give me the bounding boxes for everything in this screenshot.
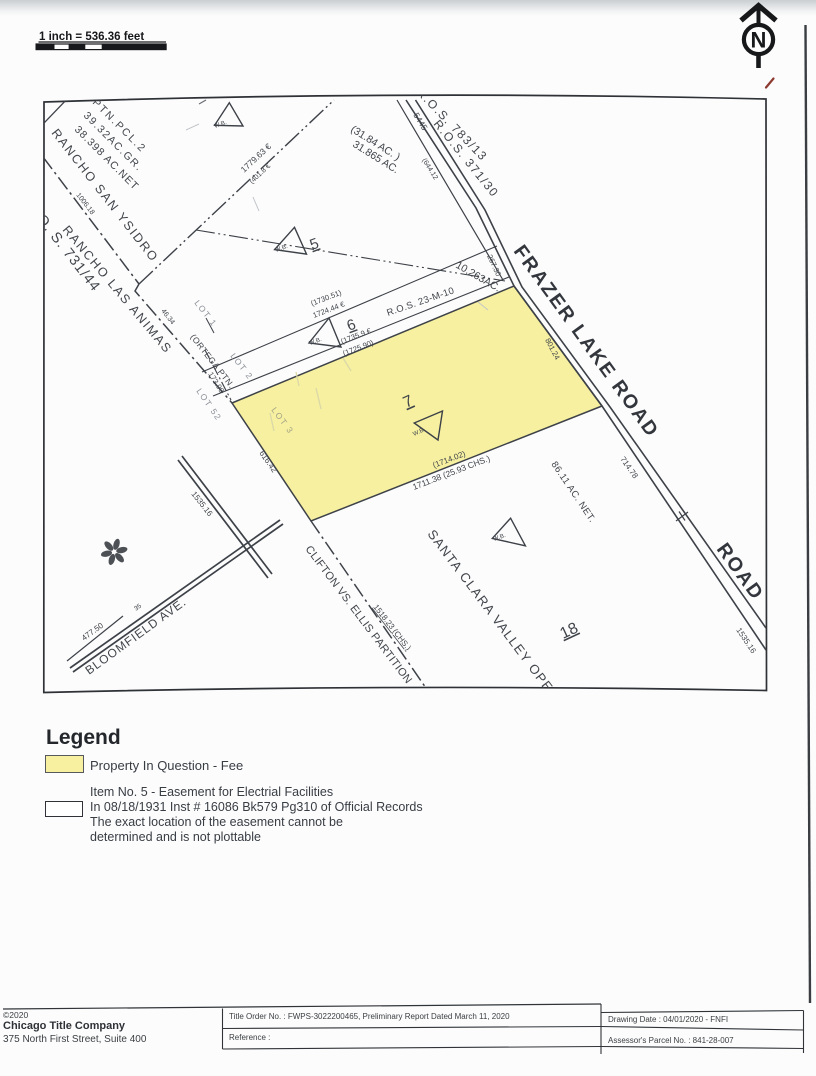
svg-text:N: N — [751, 28, 767, 53]
svg-text:5: 5 — [308, 235, 322, 254]
svg-text:18: 18 — [558, 620, 581, 643]
svg-text:W.B.: W.B. — [309, 337, 323, 347]
svg-text:LOT 1: LOT 1 — [192, 298, 219, 329]
svg-text:(644.12: (644.12 — [420, 157, 439, 181]
svg-text:CLIFTON VS. ELLIS PARTITION: CLIFTON VS. ELLIS PARTITION — [303, 544, 415, 687]
svg-text:6: 6 — [345, 316, 359, 335]
svg-text:W.B.: W.B. — [275, 244, 289, 254]
svg-text:1 inch = 536.36 feet: 1 inch = 536.36 feet — [39, 31, 144, 43]
svg-text:RANCHO LAS ANIMAS: RANCHO LAS ANIMAS — [60, 223, 175, 357]
svg-text:1006.18: 1006.18 — [74, 192, 95, 216]
svg-text:35: 35 — [133, 602, 143, 612]
svg-text:477.50: 477.50 — [80, 621, 106, 643]
svg-text:86.11 AC. NET.: 86.11 AC. NET. — [549, 460, 598, 525]
svg-text:ROAD: ROAD — [712, 539, 768, 605]
svg-text:46.34: 46.34 — [159, 308, 175, 326]
svg-text:1535.16: 1535.16 — [734, 626, 758, 655]
svg-text:W.B.: W.B. — [214, 120, 228, 130]
